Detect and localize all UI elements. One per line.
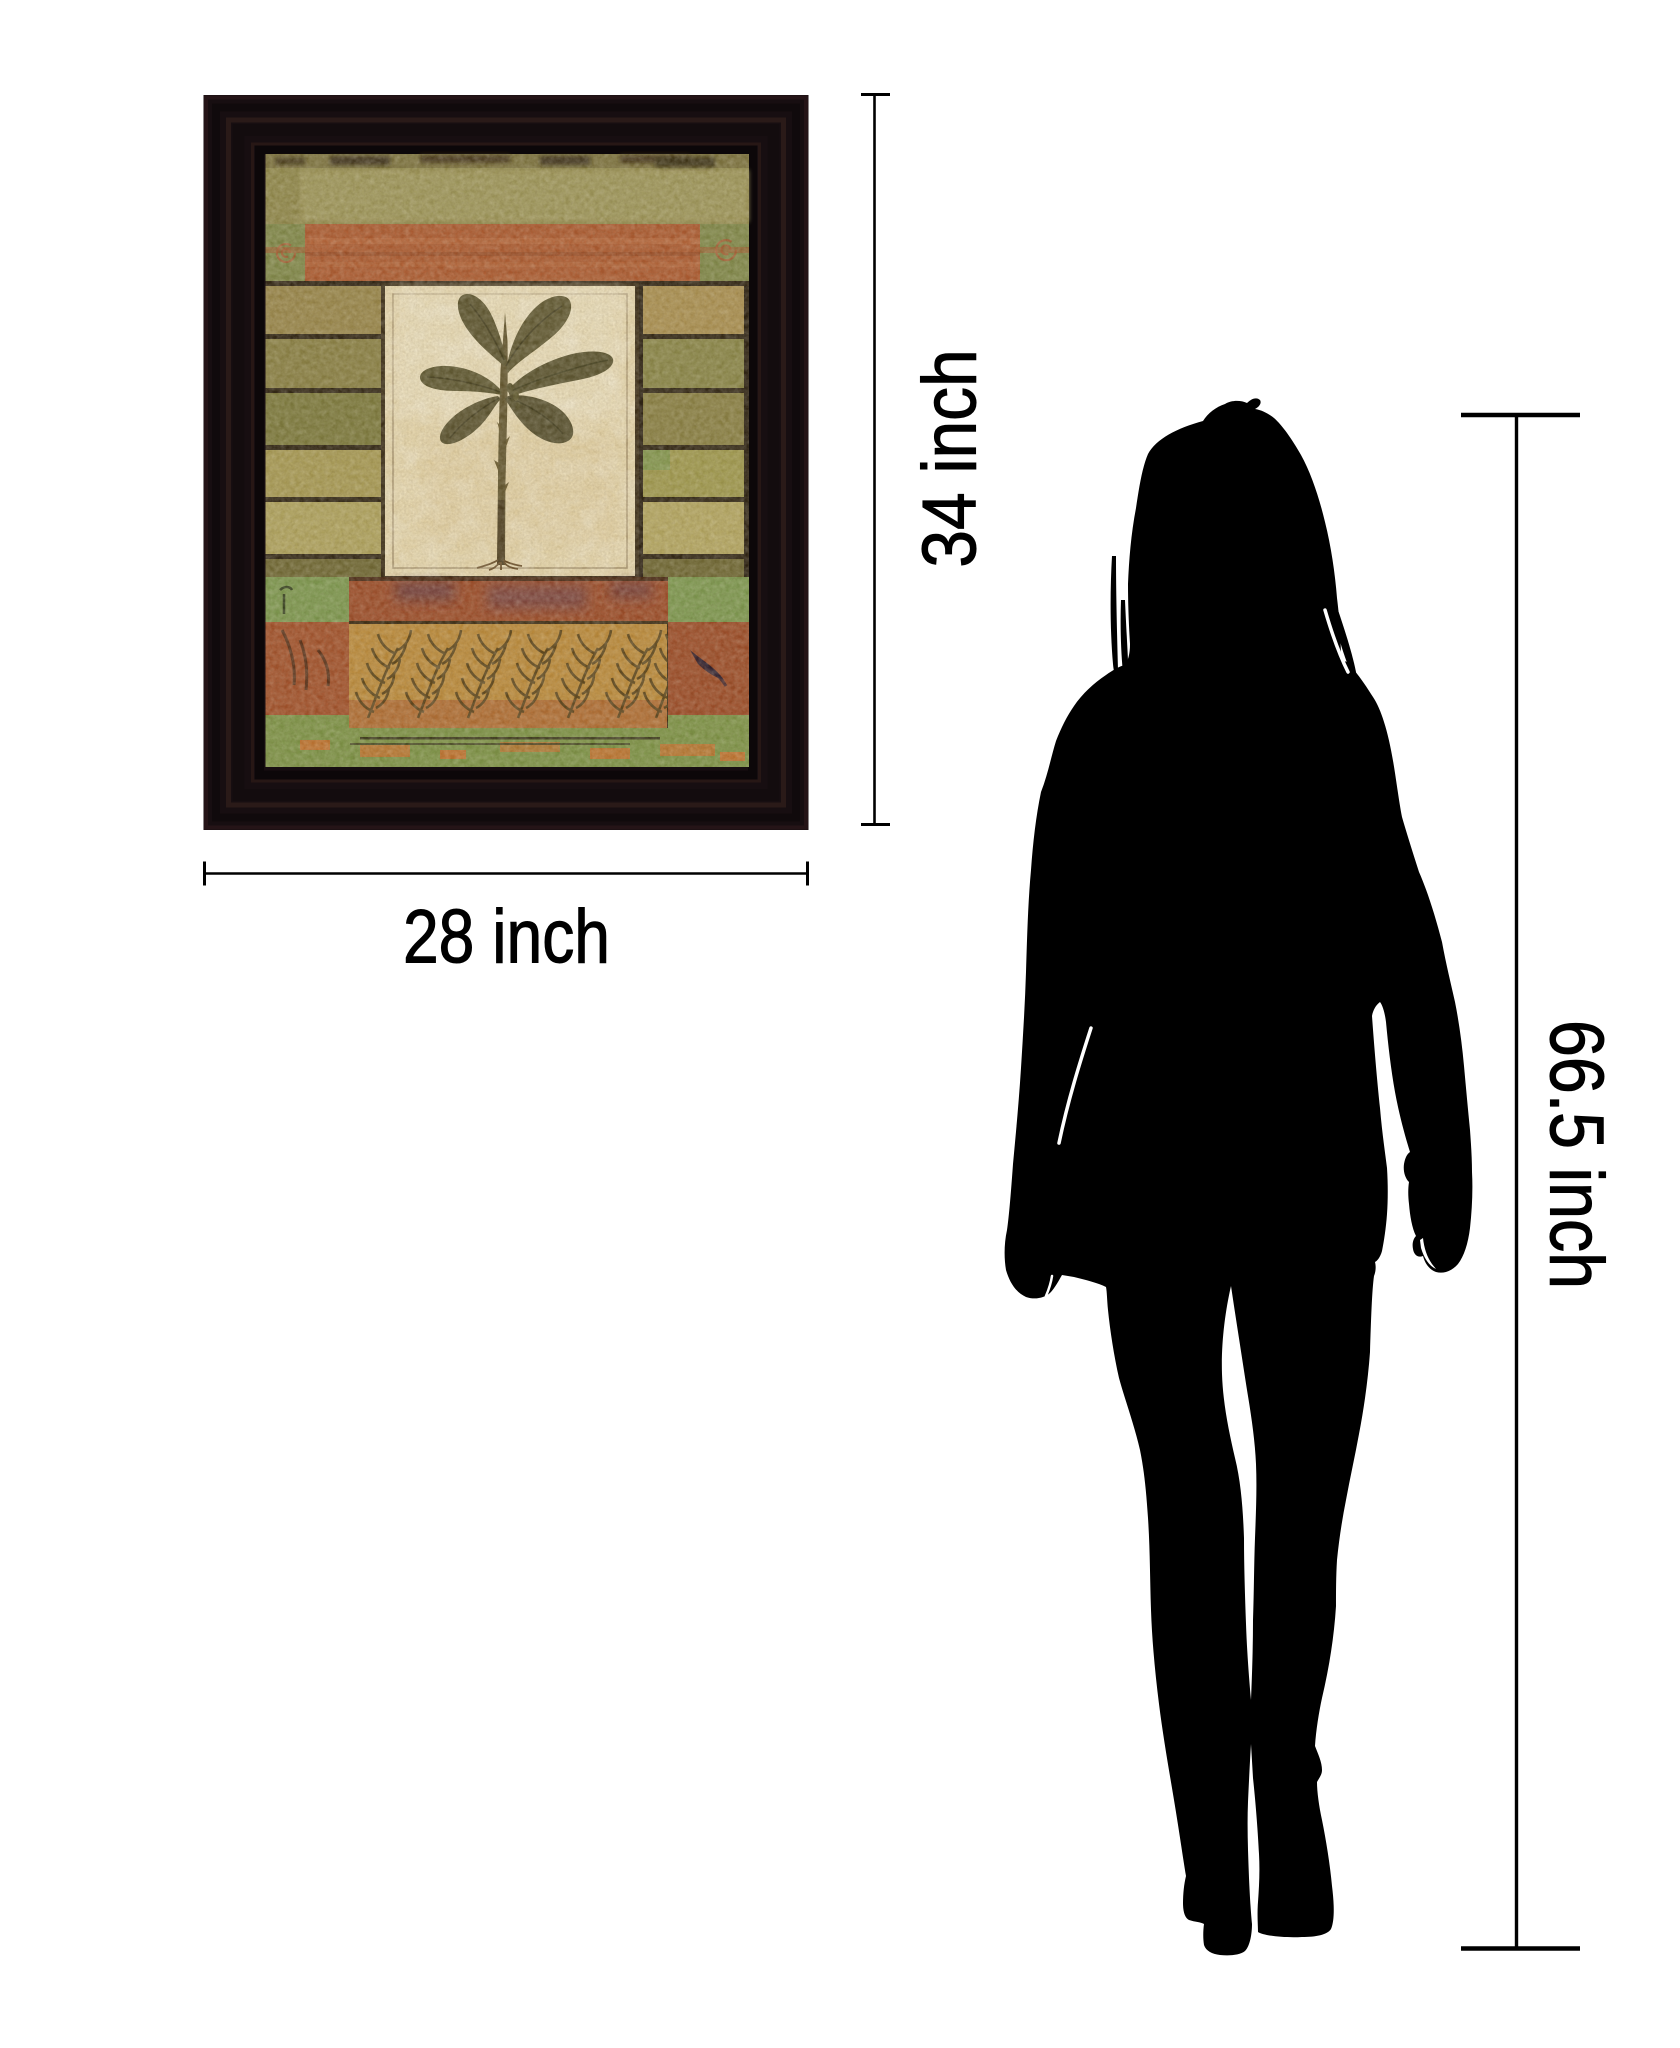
svg-text:34 inch: 34 inch: [908, 349, 992, 567]
svg-text:28 inch: 28 inch: [403, 893, 610, 978]
svg-text:66.5 inch: 66.5 inch: [1533, 1020, 1618, 1289]
